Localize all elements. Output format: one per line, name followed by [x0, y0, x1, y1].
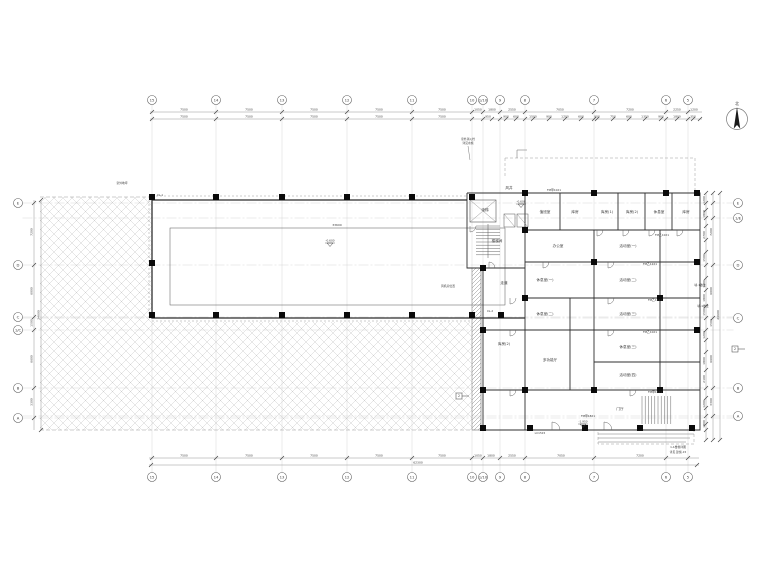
- room-label: 活动室(三): [619, 311, 637, 316]
- dim-text: 7500: [375, 454, 383, 458]
- dim-text: 24600: [716, 310, 720, 320]
- grid-bubble-bottom-label: 14: [214, 474, 219, 479]
- grid-bubble-right-label: B: [737, 385, 740, 390]
- door-arc: [510, 298, 516, 304]
- grid-bubble-right-label: A: [737, 413, 740, 418]
- room-label: 办公室: [553, 243, 564, 248]
- grid-bubble-left-label: 1/C: [15, 327, 22, 332]
- room-label: 走道: [500, 280, 508, 285]
- dim-chain-top: [150, 112, 702, 119]
- garage-outer-walls: [152, 200, 525, 318]
- dim-text: 33600: [332, 223, 342, 227]
- column: [480, 327, 486, 333]
- dim-text: 6600: [30, 355, 34, 363]
- column: [522, 295, 528, 301]
- garage-overhang-dashed: [149, 196, 472, 321]
- dim-text: 3300: [30, 398, 34, 406]
- dim-text: 1200: [702, 196, 706, 204]
- floor-plan-sheet: 北 1515141413131212111110101/101/10998877…: [0, 0, 760, 570]
- column: [522, 387, 528, 393]
- dim-text: 1200: [702, 331, 706, 339]
- room-label: 库房: [571, 209, 579, 214]
- grid-bubble-top-label: 15: [150, 97, 155, 102]
- dim-text: 7500: [375, 115, 383, 119]
- grid-bubble-right-label: D: [737, 262, 740, 267]
- note-text: FM甲1021: [547, 188, 561, 192]
- dim-text: 1800: [488, 108, 496, 112]
- column: [637, 425, 643, 431]
- dim-text: 1800: [673, 115, 681, 119]
- right-block-walls: [467, 193, 700, 430]
- column: [480, 387, 486, 393]
- note-text: 详见水施: [462, 141, 473, 145]
- dim-text: 1500: [529, 115, 537, 119]
- dim-text: 7500: [245, 108, 253, 112]
- dim-text: 7500: [180, 115, 188, 119]
- north-label: 北: [735, 100, 739, 106]
- column: [582, 425, 588, 431]
- note-text: FM乙1021: [643, 330, 657, 334]
- elevation-symbol: [327, 243, 333, 247]
- door-arc: [510, 390, 516, 396]
- note-text: LC1515: [535, 431, 546, 435]
- dim-text: 7500: [438, 454, 446, 458]
- grid-bubble-top-label: 14: [214, 97, 219, 102]
- dim-text: 900: [546, 115, 552, 119]
- dim-text: 1200: [690, 108, 698, 112]
- dim-text: 7500: [180, 108, 188, 112]
- dim-text: 900: [594, 115, 600, 119]
- dim-text: 1800: [487, 454, 495, 458]
- floor-plan-canvas: 北 1515141413131212111110101/101/10998877…: [0, 0, 760, 570]
- note-text: 墙-1做法: [694, 283, 705, 287]
- column: [694, 259, 700, 265]
- dim-text: 1500: [702, 254, 706, 262]
- room-label: 休息室(一): [536, 277, 554, 282]
- column: [522, 227, 528, 233]
- dim-text: 7500: [180, 454, 188, 458]
- column: [279, 312, 285, 318]
- dim-text: 7050: [556, 108, 564, 112]
- note-text: FM甲1521: [648, 390, 662, 394]
- column: [469, 194, 475, 200]
- room-label: 楼梯间: [492, 238, 503, 243]
- column: [344, 194, 350, 200]
- elevation-value: -1.950: [578, 420, 587, 424]
- dim-text: 7050: [557, 454, 565, 458]
- note-text: 风机房位置: [441, 284, 455, 288]
- dim-text: 350: [690, 115, 696, 119]
- grid-bubble-top-label: 11: [410, 97, 415, 102]
- column: [213, 194, 219, 200]
- duct-shaft-2-diag: [517, 214, 528, 227]
- grid-bubble-right-label: C: [737, 315, 740, 320]
- column: [409, 312, 415, 318]
- grid-bubble-top-label: 13: [280, 97, 285, 102]
- column: [689, 425, 695, 431]
- room-label: 活动室(一): [619, 243, 637, 248]
- grid-bubble-top-label: 12: [345, 97, 350, 102]
- dim-text: 950: [485, 115, 491, 119]
- column: [498, 312, 504, 318]
- dim-chain-bottom: [149, 458, 699, 465]
- note-text: FM乙1221: [643, 262, 657, 266]
- elevation-value: -0.600: [325, 239, 334, 243]
- column: [480, 425, 486, 431]
- column: [663, 190, 669, 196]
- dim-text: 2100: [702, 375, 706, 383]
- dim-text: 750: [610, 115, 616, 119]
- column: [469, 312, 475, 318]
- dim-text: 7200: [709, 228, 713, 236]
- dim-text: 900: [503, 115, 509, 119]
- dim-text: 1050: [474, 108, 482, 112]
- grid-bubble-top-label: 1/10: [479, 97, 488, 102]
- note-leader: [468, 146, 470, 160]
- roof-canopy-dashed: [505, 158, 695, 193]
- grid-bubble-bottom-label: 12: [345, 474, 350, 479]
- room-label: 风井: [505, 185, 513, 190]
- dim-text: 7500: [310, 108, 318, 112]
- elevation-value: -0.600: [516, 200, 525, 204]
- dim-text: 62300: [413, 461, 423, 465]
- dim-text: 2700: [702, 231, 706, 239]
- door-arc: [552, 422, 560, 430]
- north-arrow: 北: [727, 100, 748, 130]
- room-label: 活动室(四): [619, 372, 637, 377]
- garage-inner-outline: [170, 228, 505, 305]
- note-text: FM乙1021: [655, 233, 669, 237]
- dim-text: 6000: [30, 287, 34, 295]
- grid-bubble-bottom-label: 15: [150, 474, 155, 479]
- dim-text: 1200: [561, 115, 569, 119]
- column: [591, 259, 597, 265]
- room-label: 门厅: [616, 406, 624, 411]
- room-label: 库房(2): [498, 341, 511, 346]
- grid-bubble-bottom-label: 1/10: [479, 474, 488, 479]
- dim-text: 900: [658, 115, 664, 119]
- room-label: 库房(2): [626, 209, 639, 214]
- north-arrow-needle: [734, 107, 740, 129]
- dim-text: 600: [578, 115, 584, 119]
- door-arc: [597, 230, 603, 236]
- dim-text: 2550: [508, 108, 516, 112]
- column: [344, 312, 350, 318]
- note-text: 墙-1做法: [697, 304, 708, 308]
- dim-text: 1800: [702, 357, 706, 365]
- dim-text: 3300: [709, 398, 713, 406]
- dim-text: 24600: [37, 310, 41, 320]
- grid-bubble-left-label: B: [17, 385, 20, 390]
- dim-text: 7500: [438, 115, 446, 119]
- grid-bubble-left-label: C: [17, 314, 20, 319]
- column: [522, 190, 528, 196]
- dim-text: 6000: [709, 287, 713, 295]
- duct-shaft-1-diag: [504, 214, 515, 227]
- door-arc: [470, 226, 476, 232]
- note-text: XL-1: [157, 193, 163, 197]
- dim-text: 7500: [245, 115, 253, 119]
- column: [213, 312, 219, 318]
- column: [149, 260, 155, 266]
- column: [694, 327, 700, 333]
- room-label: 电梯: [481, 207, 489, 212]
- door-arc: [677, 230, 683, 236]
- grid-bubble-bottom-label: 11: [410, 474, 415, 479]
- dim-text: 2250: [673, 108, 681, 112]
- dim-text: 7200: [636, 454, 644, 458]
- slope-hatch-region: [40, 197, 472, 430]
- dim-text: 1500: [702, 308, 706, 316]
- retaining-wall-strip: [472, 268, 481, 430]
- note-text: 室外地坪: [116, 181, 127, 185]
- door-arc: [623, 230, 629, 236]
- note-text: 详见 建施-15: [670, 450, 687, 454]
- dim-text: 7500: [310, 454, 318, 458]
- room-label: 多功能厅: [543, 357, 558, 362]
- room-label: 值班室: [540, 209, 551, 214]
- grid-bubble-left-label: D: [17, 262, 20, 267]
- note-text: FM乙1221: [648, 298, 662, 302]
- dim-text: 1200: [702, 400, 706, 408]
- note-text: FM甲1821: [581, 414, 595, 418]
- door-arc: [608, 330, 614, 336]
- room-label: 休息室: [654, 209, 665, 214]
- dim-text: 7500: [310, 115, 318, 119]
- garage-block: [152, 200, 525, 318]
- door-arc: [604, 422, 612, 430]
- column: [527, 425, 533, 431]
- dim-text: 1050: [474, 454, 482, 458]
- room-label: 休息室(三): [619, 344, 637, 349]
- section-marker-label: 2: [734, 347, 736, 351]
- column: [279, 194, 285, 200]
- column: [409, 194, 415, 200]
- door-arc: [510, 330, 516, 336]
- dim-text: 7200: [30, 228, 34, 236]
- dim-text: 7500: [375, 108, 383, 112]
- grid-bubble-right-label: 1/E: [735, 215, 742, 220]
- dim-text: 1500: [30, 319, 34, 327]
- column: [591, 190, 597, 196]
- section-marker-label: 2: [458, 394, 460, 398]
- dim-text: 7200: [626, 108, 634, 112]
- dim-text: 1800: [702, 294, 706, 302]
- note-text: XL-2: [487, 309, 493, 313]
- room-label: 库房: [682, 209, 690, 214]
- dim-text: 600: [626, 115, 632, 119]
- dim-text: 2550: [508, 454, 516, 458]
- grid-bubble-bottom-label: 10: [470, 474, 475, 479]
- dim-text: 1800: [702, 420, 706, 428]
- dim-text: 1800: [702, 210, 706, 218]
- column: [149, 312, 155, 318]
- dim-text: 1350: [641, 115, 649, 119]
- dim-text: 7500: [438, 108, 446, 112]
- grid-bubble-bottom-label: 13: [280, 474, 285, 479]
- entrance-steps: [598, 434, 694, 442]
- column: [591, 387, 597, 393]
- grid-bubble-left-label: A: [17, 415, 20, 420]
- door-arc: [630, 390, 636, 396]
- elevation-symbol: [518, 204, 524, 208]
- room-label: 休息室(二): [536, 311, 554, 316]
- room-label: 活动室(二): [619, 277, 637, 282]
- dim-text: 600: [513, 115, 519, 119]
- dim-text: 6600: [709, 355, 713, 363]
- column: [480, 265, 486, 271]
- column: [694, 190, 700, 196]
- dim-text: 7500: [245, 454, 253, 458]
- note-text: 1-1楼梯详图: [670, 445, 686, 449]
- grid-bubble-top-label: 10: [470, 97, 475, 102]
- dim-text: 1500: [709, 319, 713, 327]
- column: [149, 194, 155, 200]
- canopy-hook: [517, 150, 527, 158]
- door-arc: [608, 298, 614, 304]
- room-label: 库房(1): [601, 209, 614, 214]
